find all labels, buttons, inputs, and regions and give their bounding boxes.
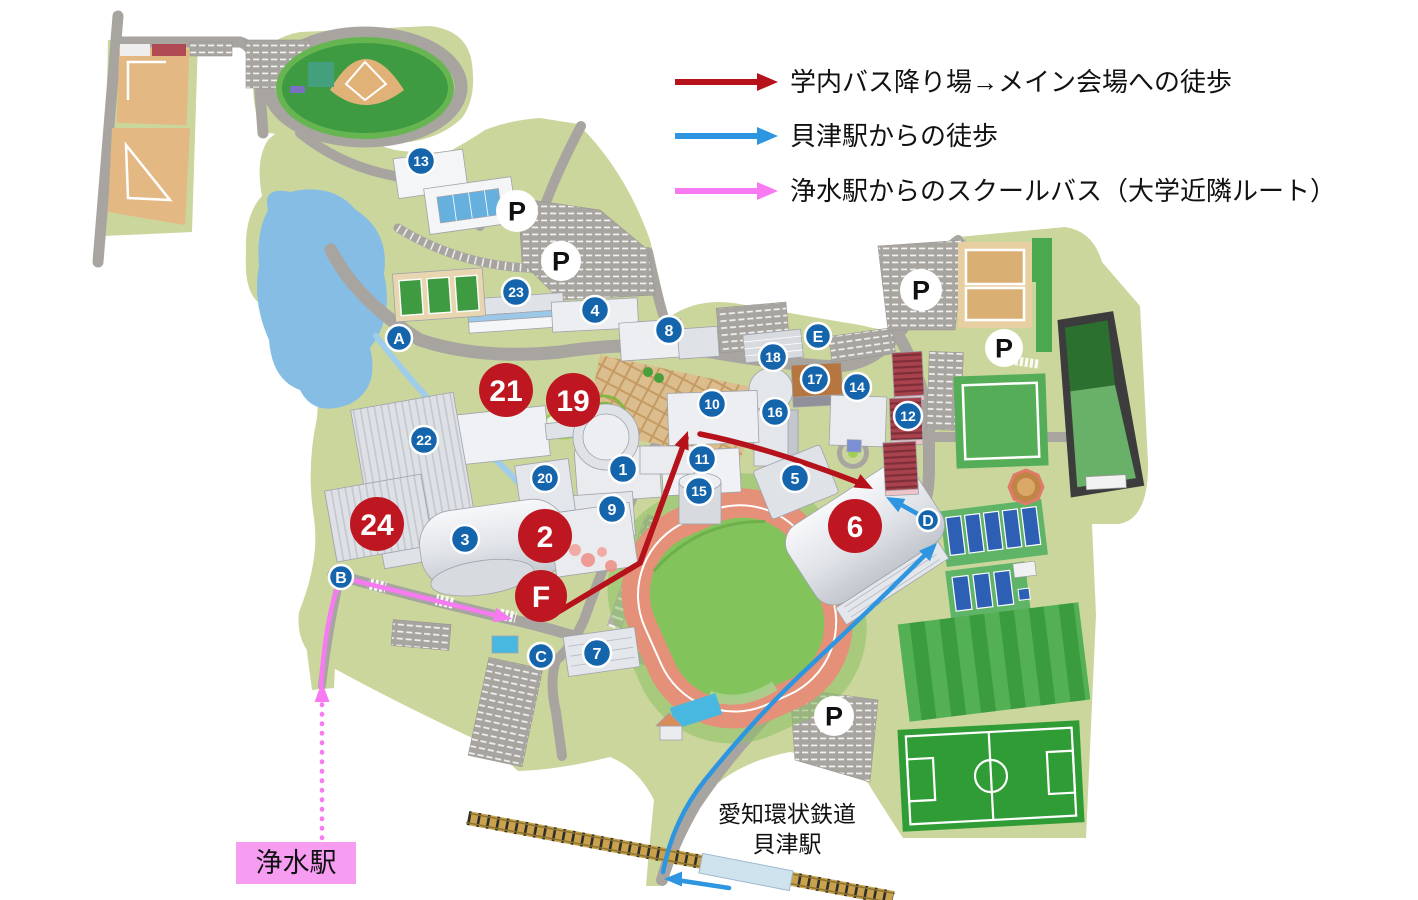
svg-text:23: 23 [508, 284, 524, 300]
building-marker-5: 5 [781, 464, 809, 492]
octagon-dohyo [1009, 470, 1043, 504]
parking-marker: P [985, 329, 1023, 367]
legend-arrowhead-icon [757, 182, 778, 200]
left-practice-fields [108, 47, 190, 225]
svg-text:24: 24 [360, 509, 394, 542]
venue-marker-24: 24 [350, 497, 404, 551]
svg-text:14: 14 [849, 379, 865, 395]
svg-text:A: A [393, 331, 405, 348]
venue-marker-21: 21 [479, 363, 533, 417]
building-marker-23: 23 [502, 278, 530, 306]
svg-text:P: P [995, 334, 1013, 364]
svg-text:E: E [813, 329, 824, 346]
building-marker-8: 8 [655, 316, 683, 344]
building-marker-20: 20 [531, 464, 559, 492]
josui-station-label: 浄水駅 [256, 848, 337, 878]
svg-text:B: B [335, 570, 347, 587]
railway-company-label: 愛知環状鉄道 [718, 801, 856, 827]
venue-marker-19: 19 [546, 373, 600, 427]
tan-courts [958, 242, 1032, 328]
legend-label: 学内バス降り場→メイン会場への徒歩 [790, 67, 1232, 97]
svg-text:22: 22 [416, 432, 432, 448]
building-marker-9: 9 [598, 495, 626, 523]
blue-shed [492, 636, 518, 653]
building-marker-7: 7 [583, 639, 611, 667]
building-marker-14: 14 [843, 373, 871, 401]
svg-text:18: 18 [765, 349, 781, 365]
bordered-green-field [953, 373, 1048, 468]
building-marker-13: 13 [407, 147, 435, 175]
svg-text:17: 17 [807, 371, 823, 387]
svg-text:P: P [508, 197, 526, 227]
building-marker-1: 1 [609, 455, 637, 483]
svg-text:5: 5 [791, 471, 800, 488]
parking-marker: P [541, 241, 581, 281]
svg-text:19: 19 [556, 385, 589, 418]
venue-marker-2: 2 [518, 509, 572, 563]
building-marker-4: 4 [581, 296, 609, 324]
svg-text:P: P [825, 702, 843, 732]
legend-item-campus-bus-walk: 学内バス降り場→メイン会場への徒歩 [675, 67, 1232, 97]
soccer-field [897, 720, 1084, 831]
legend-label: 浄水駅からのスクールバス（大学近隣ルート） [790, 176, 1336, 206]
campus-map-page: PPPPPABCDE134578910111213141516171820222… [0, 0, 1418, 900]
building-14 [829, 395, 887, 453]
building-marker-3: 3 [451, 525, 479, 553]
svg-text:F: F [532, 581, 550, 614]
venue-marker-6: 6 [828, 499, 882, 553]
svg-text:21: 21 [489, 375, 522, 408]
svg-text:15: 15 [691, 483, 707, 499]
svg-text:13: 13 [413, 153, 429, 169]
legend-item-kaizu-station-walk: 貝津駅からの徒歩 [675, 121, 998, 151]
building-marker-12: 12 [894, 402, 922, 430]
svg-text:P: P [552, 247, 570, 277]
svg-text:3: 3 [461, 532, 470, 549]
svg-text:D: D [922, 513, 934, 530]
svg-text:16: 16 [767, 404, 783, 420]
svg-text:10: 10 [704, 396, 720, 412]
svg-text:C: C [535, 649, 547, 666]
legend-item-josui-school-bus: 浄水駅からのスクールバス（大学近隣ルート） [675, 176, 1336, 206]
venue-marker-F: F [515, 570, 567, 622]
stop-marker-B: B [329, 565, 353, 589]
stop-marker-C: C [528, 643, 554, 669]
svg-text:20: 20 [537, 470, 553, 486]
legend: 学内バス降り場→メイン会場への徒歩貝津駅からの徒歩浄水駅からのスクールバス（大学… [675, 67, 1336, 206]
svg-text:9: 9 [608, 502, 617, 519]
building-marker-10: 10 [698, 390, 726, 418]
parking-marker: P [900, 269, 942, 311]
building-marker-22: 22 [410, 426, 438, 454]
svg-text:8: 8 [665, 323, 674, 340]
stop-marker-A: A [386, 325, 412, 351]
building-marker-18: 18 [759, 343, 787, 371]
svg-text:4: 4 [591, 303, 600, 320]
svg-text:P: P [912, 276, 930, 306]
building-marker-17: 17 [801, 365, 829, 393]
stop-marker-E: E [805, 323, 831, 349]
svg-text:11: 11 [695, 451, 710, 467]
legend-arrowhead-icon [757, 127, 778, 145]
svg-text:12: 12 [900, 408, 916, 424]
parking-marker: P [814, 696, 854, 736]
parking-marker: P [496, 190, 538, 232]
campus-map: PPPPPABCDE134578910111213141516171820222… [0, 0, 1418, 900]
svg-text:1: 1 [619, 462, 628, 479]
legend-arrowhead-icon [757, 73, 778, 91]
svg-text:2: 2 [537, 521, 554, 554]
stop-marker-D: D [917, 509, 939, 531]
left-tennis-courts [392, 268, 485, 322]
building-marker-11: 11 [688, 445, 716, 473]
building-marker-15: 15 [685, 477, 713, 505]
kaizu-station-label: 貝津駅 [753, 831, 822, 857]
building-marker-16: 16 [761, 398, 789, 426]
svg-text:7: 7 [593, 646, 602, 663]
legend-label: 貝津駅からの徒歩 [790, 121, 998, 151]
svg-text:6: 6 [847, 511, 864, 544]
